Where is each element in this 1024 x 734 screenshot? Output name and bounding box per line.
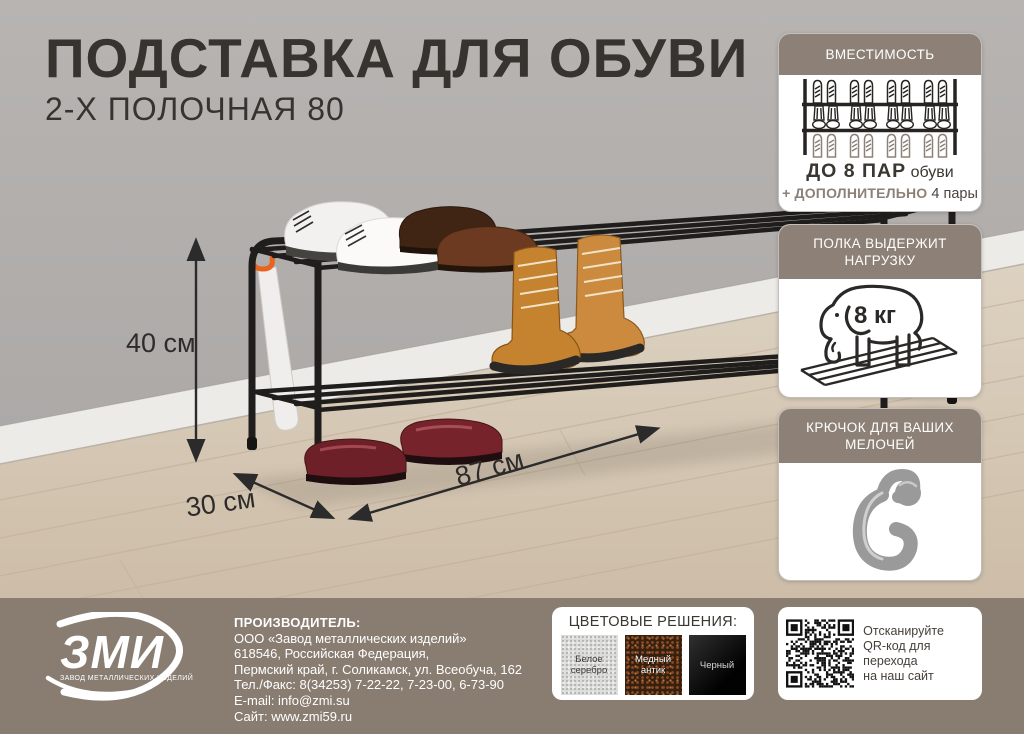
qr-caption-line: QR-код для перехода bbox=[863, 639, 974, 669]
logo-tagline: ЗАВОД МЕТАЛЛИЧЕСКИХ ИЗДЕЛИЙ bbox=[60, 673, 193, 682]
capacity-count-bold: ДО 8 ПАР bbox=[806, 160, 906, 182]
load-value: 8 кг bbox=[854, 302, 896, 329]
swatch-label: Белое bbox=[575, 654, 602, 665]
qr-panel: Отсканируйте QR-код для перехода на наш … bbox=[778, 607, 982, 700]
page-subtitle: 2-Х ПОЛОЧНАЯ 80 bbox=[45, 91, 775, 128]
hook-card: КРЮЧОК ДЛЯ ВАШИХ МЕЛОЧЕЙ bbox=[778, 408, 982, 581]
swatch-copper-antique: Медный антик bbox=[625, 635, 682, 695]
hook-header-line1: КРЮЧОК ДЛЯ ВАШИХ bbox=[783, 419, 977, 436]
manufacturer-line: Тел./Факс: 8(34253) 7-22-22, 7-23-00, 6-… bbox=[234, 677, 522, 693]
qr-caption-line: на наш сайт bbox=[863, 669, 974, 684]
qr-code bbox=[786, 615, 854, 692]
swatch-black: Черный bbox=[689, 635, 746, 695]
capacity-extra-bold: + ДОПОЛНИТЕЛЬНО bbox=[782, 185, 927, 201]
capacity-extra: + ДОПОЛНИТЕЛЬНО 4 пары bbox=[782, 185, 978, 202]
zmi-logo: ЗМИ ЗАВОД МЕТАЛЛИЧЕСКИХ ИЗДЕЛИЙ bbox=[34, 612, 204, 704]
height-label: 40 см bbox=[126, 328, 196, 358]
capacity-extra-rest: 4 пары bbox=[927, 186, 978, 202]
hook-header-line2: МЕЛОЧЕЙ bbox=[783, 436, 977, 453]
manufacturer-line: ООО «Завод металлических изделий» bbox=[234, 631, 522, 647]
capacity-card: ВМЕСТИМОСТЬ bbox=[778, 33, 982, 212]
qr-caption-line: Отсканируйте bbox=[863, 624, 974, 639]
footer-bar: ЗМИ ЗАВОД МЕТАЛЛИЧЕСКИХ ИЗДЕЛИЙ ПРОИЗВОД… bbox=[0, 598, 1024, 734]
swatch-label: антик bbox=[641, 665, 665, 676]
capacity-icon bbox=[795, 75, 965, 159]
load-header-line1: ПОЛКА ВЫДЕРЖИТ bbox=[783, 235, 977, 252]
headline-block: ПОДСТАВКА ДЛЯ ОБУВИ 2-Х ПОЛОЧНАЯ 80 bbox=[45, 30, 775, 128]
product-flyer: 40 см 30 см 87 см ПОДСТАВКА ДЛЯ ОБУВИ 2-… bbox=[0, 0, 1024, 734]
swatch-white-silver: Белое серебро bbox=[561, 635, 618, 695]
manufacturer-email: E-mail: info@zmi.su bbox=[234, 693, 522, 709]
manufacturer-line: 618546, Российская Федерация, bbox=[234, 646, 522, 662]
qr-caption: Отсканируйте QR-код для перехода на наш … bbox=[863, 624, 974, 684]
load-card-header: ПОЛКА ВЫДЕРЖИТ НАГРУЗКУ bbox=[779, 225, 981, 279]
capacity-count: ДО 8 ПАР обуви bbox=[806, 160, 953, 183]
capacity-count-rest: обуви bbox=[906, 164, 954, 181]
hook-icon bbox=[820, 463, 940, 581]
swatch-label: серебро bbox=[571, 665, 608, 676]
swatch-label: Медный bbox=[635, 654, 671, 665]
logo-text: ЗМИ bbox=[60, 626, 164, 678]
manufacturer-line: Пермский край, г. Соликамск, ул. Всеобуч… bbox=[234, 662, 522, 678]
manufacturer-website: Сайт: www.zmi59.ru bbox=[234, 709, 522, 725]
color-options-title: ЦВЕТОВЫЕ РЕШЕНИЯ: bbox=[552, 614, 754, 630]
swatch-label: Черный bbox=[700, 660, 734, 671]
load-card: ПОЛКА ВЫДЕРЖИТ НАГРУЗКУ bbox=[778, 224, 982, 398]
capacity-card-header: ВМЕСТИМОСТЬ bbox=[779, 34, 981, 75]
load-header-line2: НАГРУЗКУ bbox=[783, 252, 977, 269]
page-title: ПОДСТАВКА ДЛЯ ОБУВИ bbox=[45, 30, 775, 87]
hook-card-header: КРЮЧОК ДЛЯ ВАШИХ МЕЛОЧЕЙ bbox=[779, 409, 981, 463]
color-options-panel: ЦВЕТОВЫЕ РЕШЕНИЯ: Белое серебро Медный а… bbox=[552, 607, 754, 700]
manufacturer-label: ПРОИЗВОДИТЕЛЬ: bbox=[234, 615, 522, 631]
elephant-icon: 8 кг bbox=[787, 279, 973, 395]
manufacturer-info: ПРОИЗВОДИТЕЛЬ: ООО «Завод металлических … bbox=[234, 615, 522, 724]
